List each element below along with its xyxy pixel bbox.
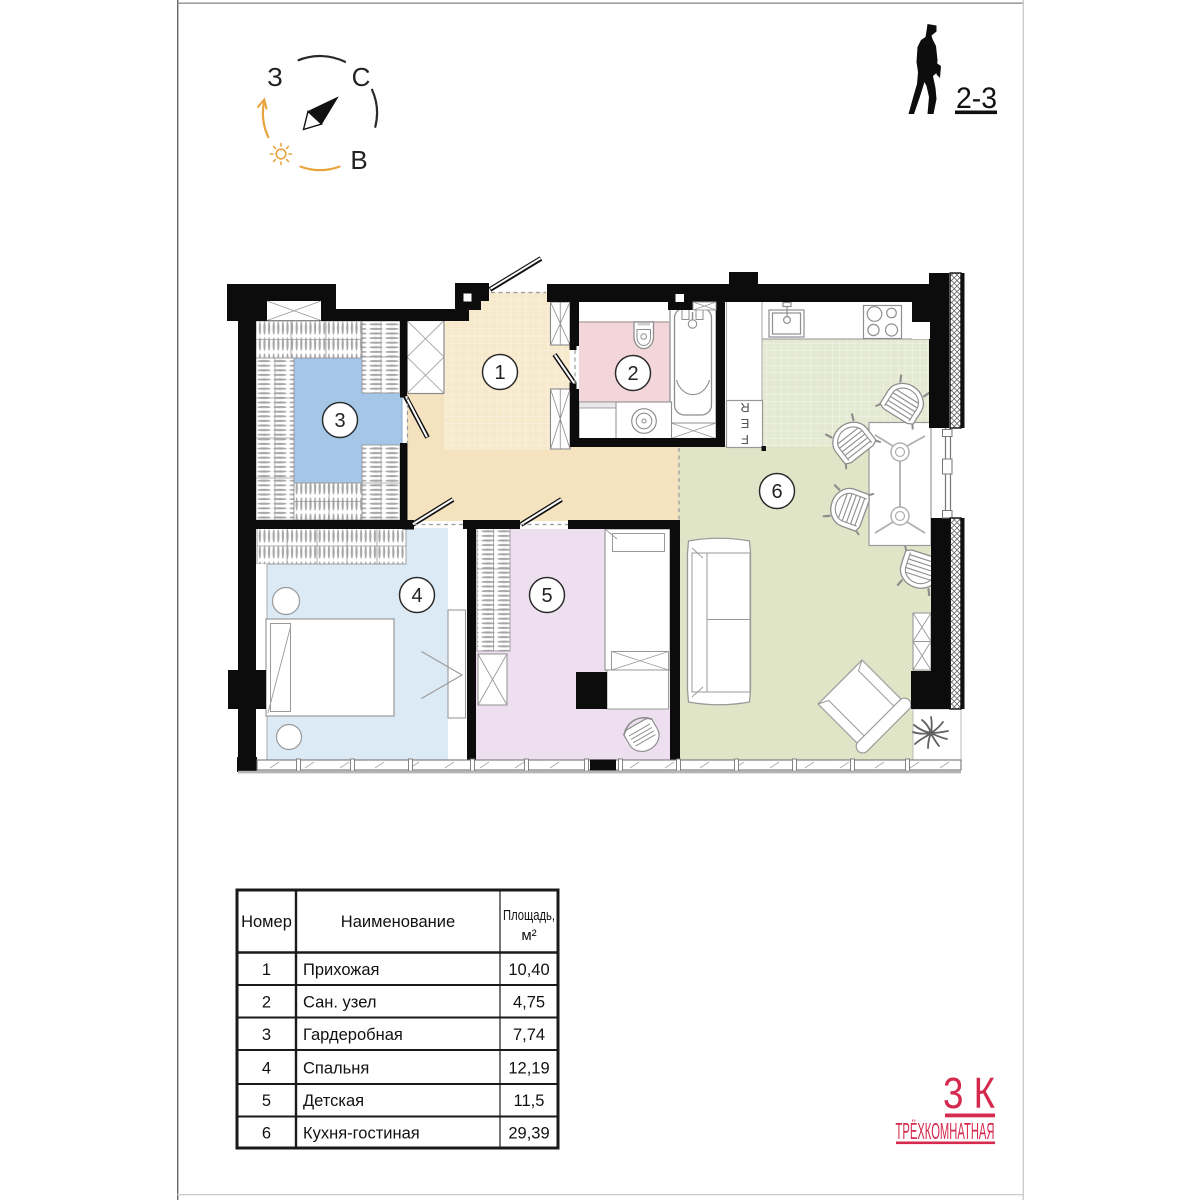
svg-text:29,39: 29,39 xyxy=(508,1125,549,1143)
svg-text:В: В xyxy=(350,145,367,175)
svg-text:10,40: 10,40 xyxy=(508,961,549,979)
svg-text:Номер: Номер xyxy=(241,913,292,931)
svg-text:Наименование: Наименование xyxy=(341,913,455,931)
svg-text:Кухня-гостиная: Кухня-гостиная xyxy=(303,1125,420,1143)
svg-text:Прихожая: Прихожая xyxy=(303,961,379,979)
svg-text:E: E xyxy=(740,416,749,431)
svg-text:3 К: 3 К xyxy=(943,1069,995,1118)
svg-text:6: 6 xyxy=(262,1125,271,1143)
svg-text:11,5: 11,5 xyxy=(514,1092,545,1110)
svg-text:4: 4 xyxy=(262,1060,271,1078)
svg-text:ТРЁХКОМНАТНАЯ: ТРЁХКОМНАТНАЯ xyxy=(896,1118,995,1144)
svg-text:12,19: 12,19 xyxy=(508,1060,549,1078)
svg-text:5: 5 xyxy=(541,585,552,607)
svg-text:4,75: 4,75 xyxy=(513,994,545,1012)
svg-text:Спальня: Спальня xyxy=(303,1060,369,1078)
svg-text:4: 4 xyxy=(411,585,422,607)
svg-text:2: 2 xyxy=(262,994,271,1012)
svg-text:1: 1 xyxy=(262,961,271,979)
svg-text:2-3: 2-3 xyxy=(956,82,997,115)
svg-text:З: З xyxy=(267,62,283,92)
svg-text:5: 5 xyxy=(262,1092,271,1110)
svg-text:6: 6 xyxy=(771,481,782,503)
svg-text:Площадь,: Площадь, xyxy=(503,907,555,924)
svg-text:1: 1 xyxy=(494,362,505,384)
svg-text:3: 3 xyxy=(262,1026,271,1044)
svg-text:F: F xyxy=(741,432,749,447)
svg-text:Детская: Детская xyxy=(303,1092,364,1110)
svg-text:Гардеробная: Гардеробная xyxy=(303,1026,403,1044)
svg-text:м²: м² xyxy=(521,927,536,944)
svg-text:R: R xyxy=(740,400,749,415)
svg-text:С: С xyxy=(352,62,371,92)
svg-text:3: 3 xyxy=(334,410,345,432)
svg-text:2: 2 xyxy=(627,363,638,385)
svg-text:Сан. узел: Сан. узел xyxy=(303,994,376,1012)
svg-text:7,74: 7,74 xyxy=(513,1026,545,1044)
